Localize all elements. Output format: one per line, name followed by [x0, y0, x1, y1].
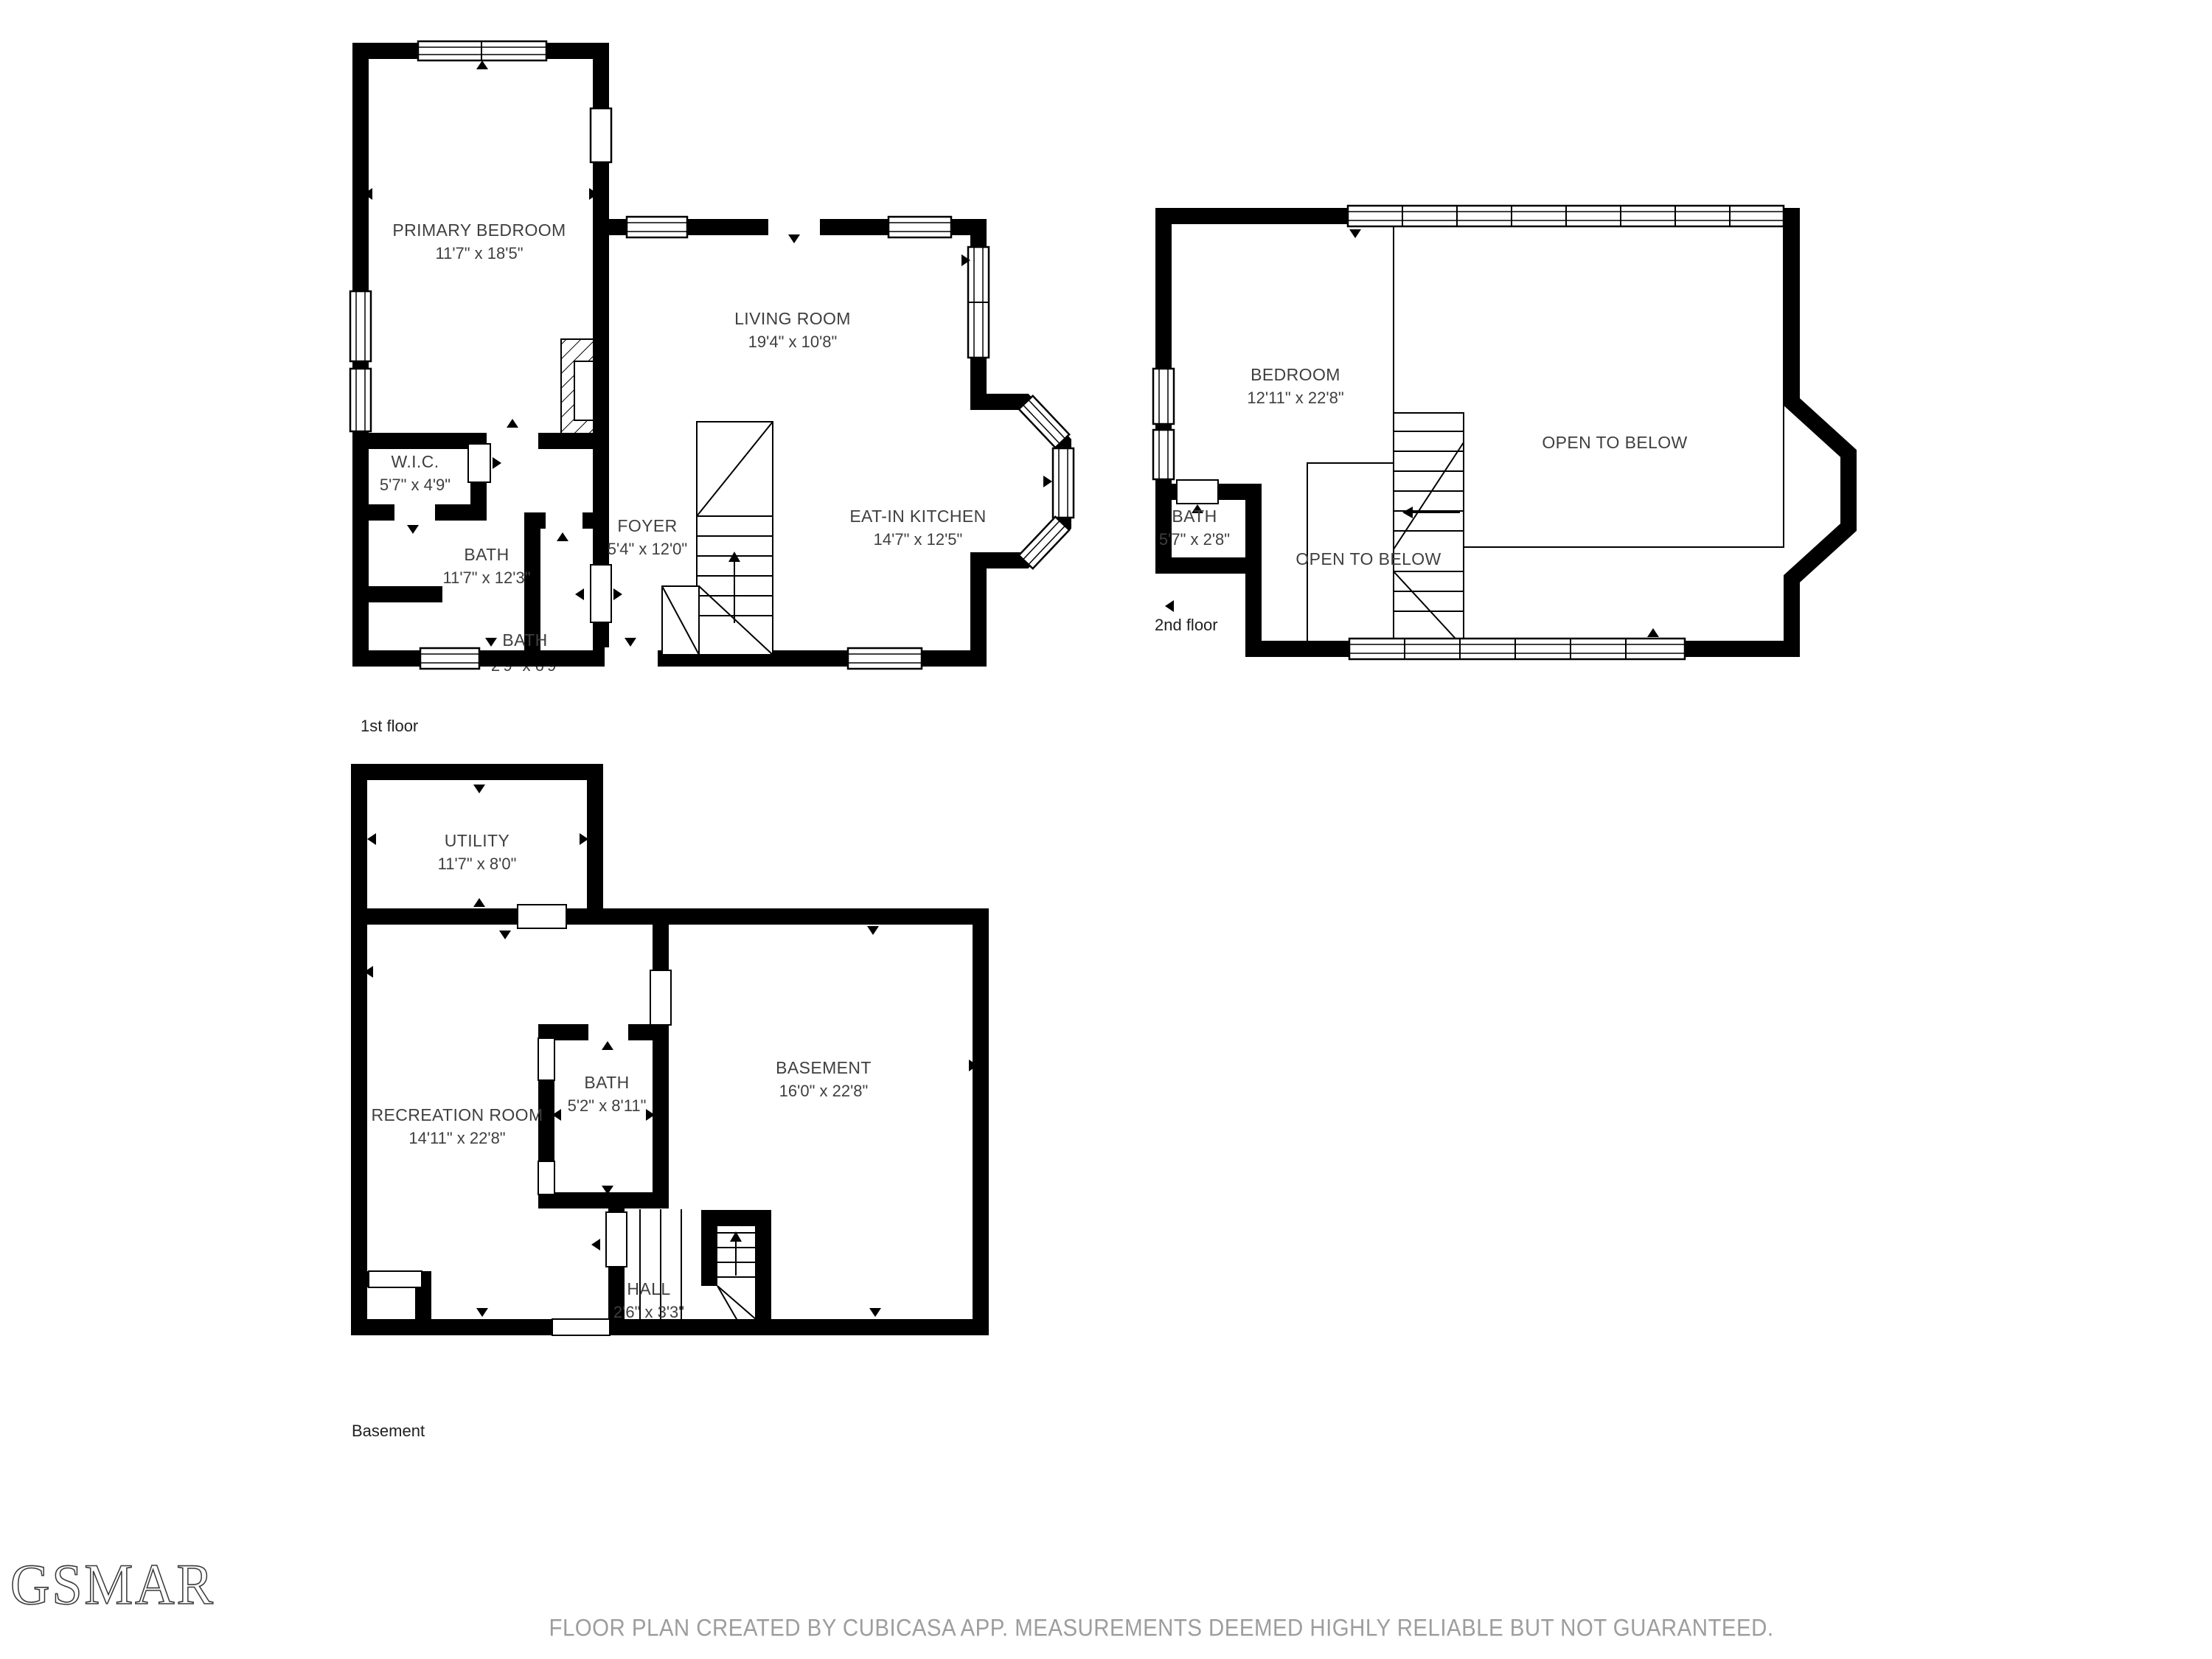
- stairs-second-floor: [1394, 413, 1464, 649]
- room-label-bath-3: BATH 5'7" x 2'8": [1159, 504, 1230, 552]
- floor-label-2nd: 2nd floor: [1155, 616, 1218, 635]
- floor-label-1st: 1st floor: [361, 717, 418, 736]
- footer-disclaimer: FLOOR PLAN CREATED BY CUBICASA APP. MEAS…: [549, 1615, 1774, 1642]
- room-label-eat-in-kitchen: EAT-IN KITCHEN 14'7" x 12'5": [849, 504, 986, 552]
- room-label-open-to-below-2: OPEN TO BELOW: [1295, 547, 1441, 571]
- room-label-open-to-below-1: OPEN TO BELOW: [1542, 431, 1687, 454]
- room-label-bath-1: BATH 11'7" x 12'3": [442, 543, 530, 590]
- room-label-primary-bedroom: PRIMARY BEDROOM 11'7" x 18'5": [392, 218, 566, 265]
- room-label-bath-2: BATH: [502, 628, 547, 652]
- second-floor-plan: [1153, 206, 1848, 659]
- floor-label-basement: Basement: [352, 1422, 425, 1441]
- room-label-bath-4: BATH 5'2" x 8'11": [568, 1071, 647, 1118]
- room-label-basement-room: BASEMENT 16'0" x 22'8": [776, 1056, 872, 1103]
- room-label-foyer: FOYER 5'4" x 12'0": [608, 514, 687, 561]
- room-label-bedroom: BEDROOM 12'11" x 22'8": [1247, 363, 1343, 410]
- floor-plan-canvas: [0, 0, 2212, 1659]
- gsmar-logo: GSMAR: [10, 1551, 215, 1618]
- room-label-wic: W.I.C. 5'7" x 4'9": [380, 450, 451, 497]
- room-label-hall: HALL 2'6" x 3'3": [613, 1277, 684, 1324]
- room-label-utility: UTILITY 11'7" x 8'0": [438, 829, 517, 876]
- room-label-living-room: LIVING ROOM 19'4" x 10'8": [734, 307, 851, 354]
- room-label-recreation-room: RECREATION ROOM 14'11" x 22'8": [371, 1103, 543, 1150]
